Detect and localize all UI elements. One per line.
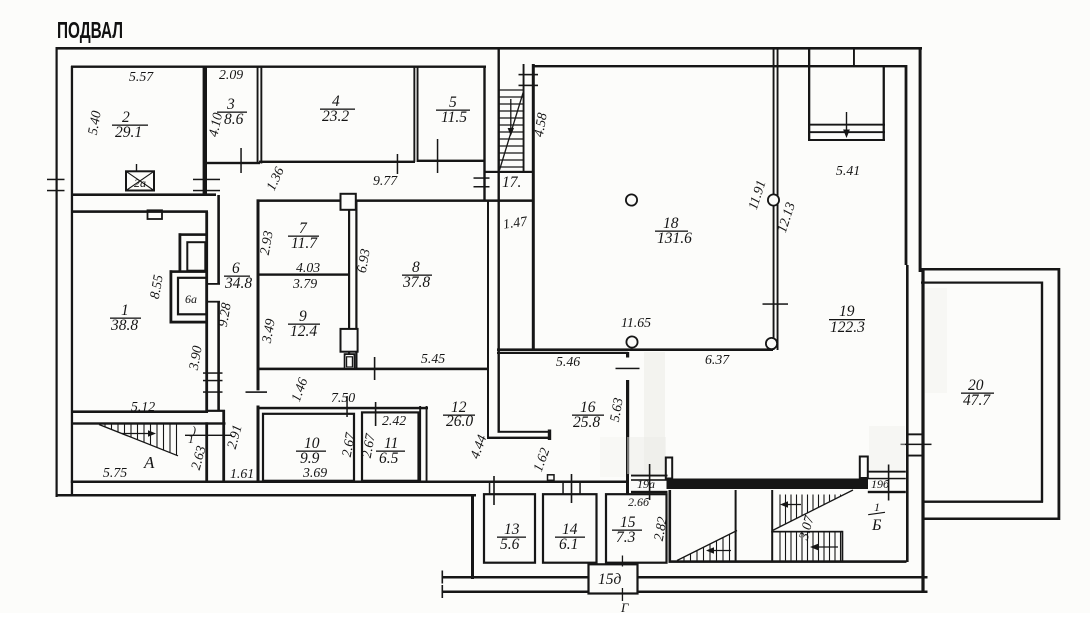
- svg-text:5.41: 5.41: [836, 163, 860, 178]
- svg-text:1: 1: [874, 500, 880, 514]
- svg-text:6.5: 6.5: [379, 450, 399, 467]
- svg-text:38.8: 38.8: [110, 317, 138, 334]
- svg-text:6.1: 6.1: [559, 536, 578, 553]
- svg-text:А: А: [143, 453, 155, 472]
- svg-text:11.5: 11.5: [441, 109, 467, 126]
- svg-text:4.03: 4.03: [296, 260, 320, 275]
- svg-text:9.77: 9.77: [373, 173, 398, 188]
- svg-text:26.0: 26.0: [446, 413, 473, 430]
- svg-text:6.37: 6.37: [705, 352, 730, 367]
- svg-text:5.6: 5.6: [500, 536, 520, 553]
- svg-text:5.45: 5.45: [421, 351, 445, 366]
- svg-text:122.3: 122.3: [830, 319, 865, 336]
- svg-text:7.50: 7.50: [331, 390, 355, 405]
- svg-text:2.09: 2.09: [219, 67, 243, 82]
- svg-text:2.6б: 2.6б: [628, 495, 650, 509]
- svg-text:3.79: 3.79: [292, 276, 317, 291]
- svg-text:17.: 17.: [502, 174, 521, 191]
- svg-text:5.12: 5.12: [131, 399, 155, 414]
- svg-text:1.61: 1.61: [230, 466, 254, 481]
- svg-text:5.75: 5.75: [103, 465, 127, 480]
- svg-text:3.69: 3.69: [302, 465, 327, 480]
- svg-text:2а: 2а: [134, 176, 146, 190]
- svg-text:7.3: 7.3: [616, 529, 636, 546]
- svg-text:Б: Б: [871, 517, 882, 534]
- svg-text:5.46: 5.46: [556, 354, 580, 369]
- svg-text:23.2: 23.2: [322, 108, 349, 125]
- svg-text:2.42: 2.42: [382, 413, 406, 428]
- svg-text:11.65: 11.65: [621, 315, 651, 330]
- svg-text:47.7: 47.7: [963, 392, 991, 409]
- svg-text:ПОДВАЛ: ПОДВАЛ: [57, 17, 123, 43]
- svg-text:Г: Г: [620, 600, 629, 613]
- svg-text:131.6: 131.6: [657, 230, 692, 247]
- svg-text:8.6: 8.6: [224, 111, 244, 128]
- svg-text:1: 1: [188, 432, 194, 446]
- svg-text:12.4: 12.4: [290, 323, 317, 340]
- svg-text:25.8: 25.8: [573, 414, 600, 431]
- svg-text:11.7: 11.7: [291, 235, 318, 252]
- svg-text:29.1: 29.1: [115, 124, 142, 141]
- svg-text:5.57: 5.57: [129, 69, 154, 84]
- svg-text:34.8: 34.8: [224, 275, 252, 292]
- svg-text:37.8: 37.8: [402, 274, 430, 291]
- svg-text:19б: 19б: [871, 477, 890, 491]
- svg-text:19а: 19а: [637, 477, 655, 491]
- svg-text:19: 19: [839, 303, 855, 320]
- svg-text:15д: 15д: [598, 571, 622, 588]
- svg-text:6а: 6а: [185, 292, 197, 306]
